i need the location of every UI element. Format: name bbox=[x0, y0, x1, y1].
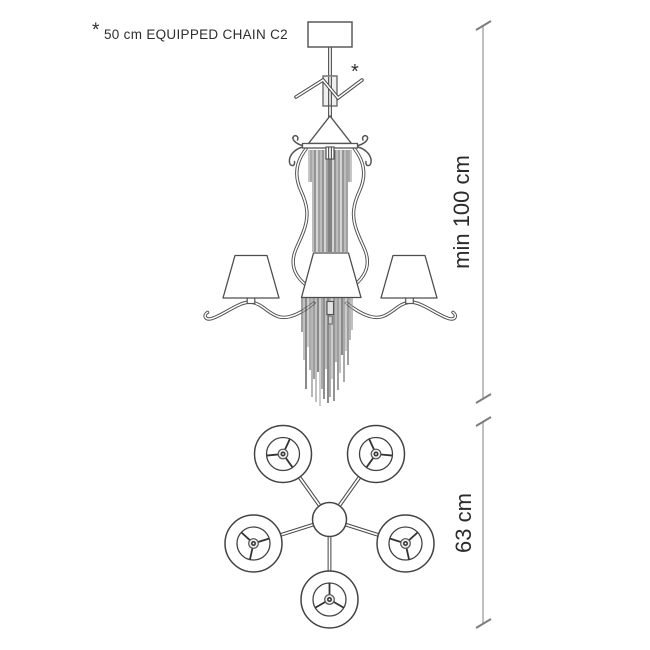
plan-view: 63 cm bbox=[225, 417, 491, 628]
right-lampshade bbox=[381, 256, 437, 299]
technical-drawing-page: * 50 cm EQUIPPED CHAIN C2 * bbox=[0, 0, 650, 650]
center-link-lower bbox=[328, 316, 332, 324]
center-link bbox=[327, 302, 334, 315]
plan-shade-right bbox=[377, 515, 434, 572]
footnote-asterisk: * bbox=[92, 20, 100, 41]
chain-length-asterisk: * bbox=[351, 61, 359, 83]
width-dimension-label: 63 cm bbox=[451, 493, 476, 553]
chain-column bbox=[309, 150, 351, 252]
left-arm bbox=[205, 302, 314, 319]
elevation-view: * bbox=[205, 21, 491, 406]
plan-shade-bottom bbox=[301, 571, 358, 628]
ceiling-canopy bbox=[308, 22, 352, 47]
width-dimension: 63 cm bbox=[451, 417, 491, 628]
height-dimension-label: min 100 cm bbox=[449, 155, 474, 269]
plan-hub bbox=[313, 503, 347, 537]
center-collar bbox=[326, 147, 334, 159]
height-dimension: min 100 cm bbox=[449, 21, 491, 403]
plan-shade-top-right bbox=[348, 426, 405, 483]
hanger-triangle bbox=[309, 116, 352, 144]
left-lampshade bbox=[223, 256, 279, 299]
footnote-text: 50 cm EQUIPPED CHAIN C2 bbox=[104, 27, 288, 42]
plan-shade-left bbox=[225, 515, 282, 572]
plan-shade-top-left bbox=[255, 426, 312, 483]
footnote: * 50 cm EQUIPPED CHAIN C2 bbox=[92, 20, 288, 42]
chandelier-spec-drawing: * 50 cm EQUIPPED CHAIN C2 * bbox=[0, 0, 650, 650]
right-arm bbox=[347, 302, 456, 319]
center-lampshade bbox=[302, 253, 362, 298]
suspension-rod-upper bbox=[329, 47, 332, 78]
